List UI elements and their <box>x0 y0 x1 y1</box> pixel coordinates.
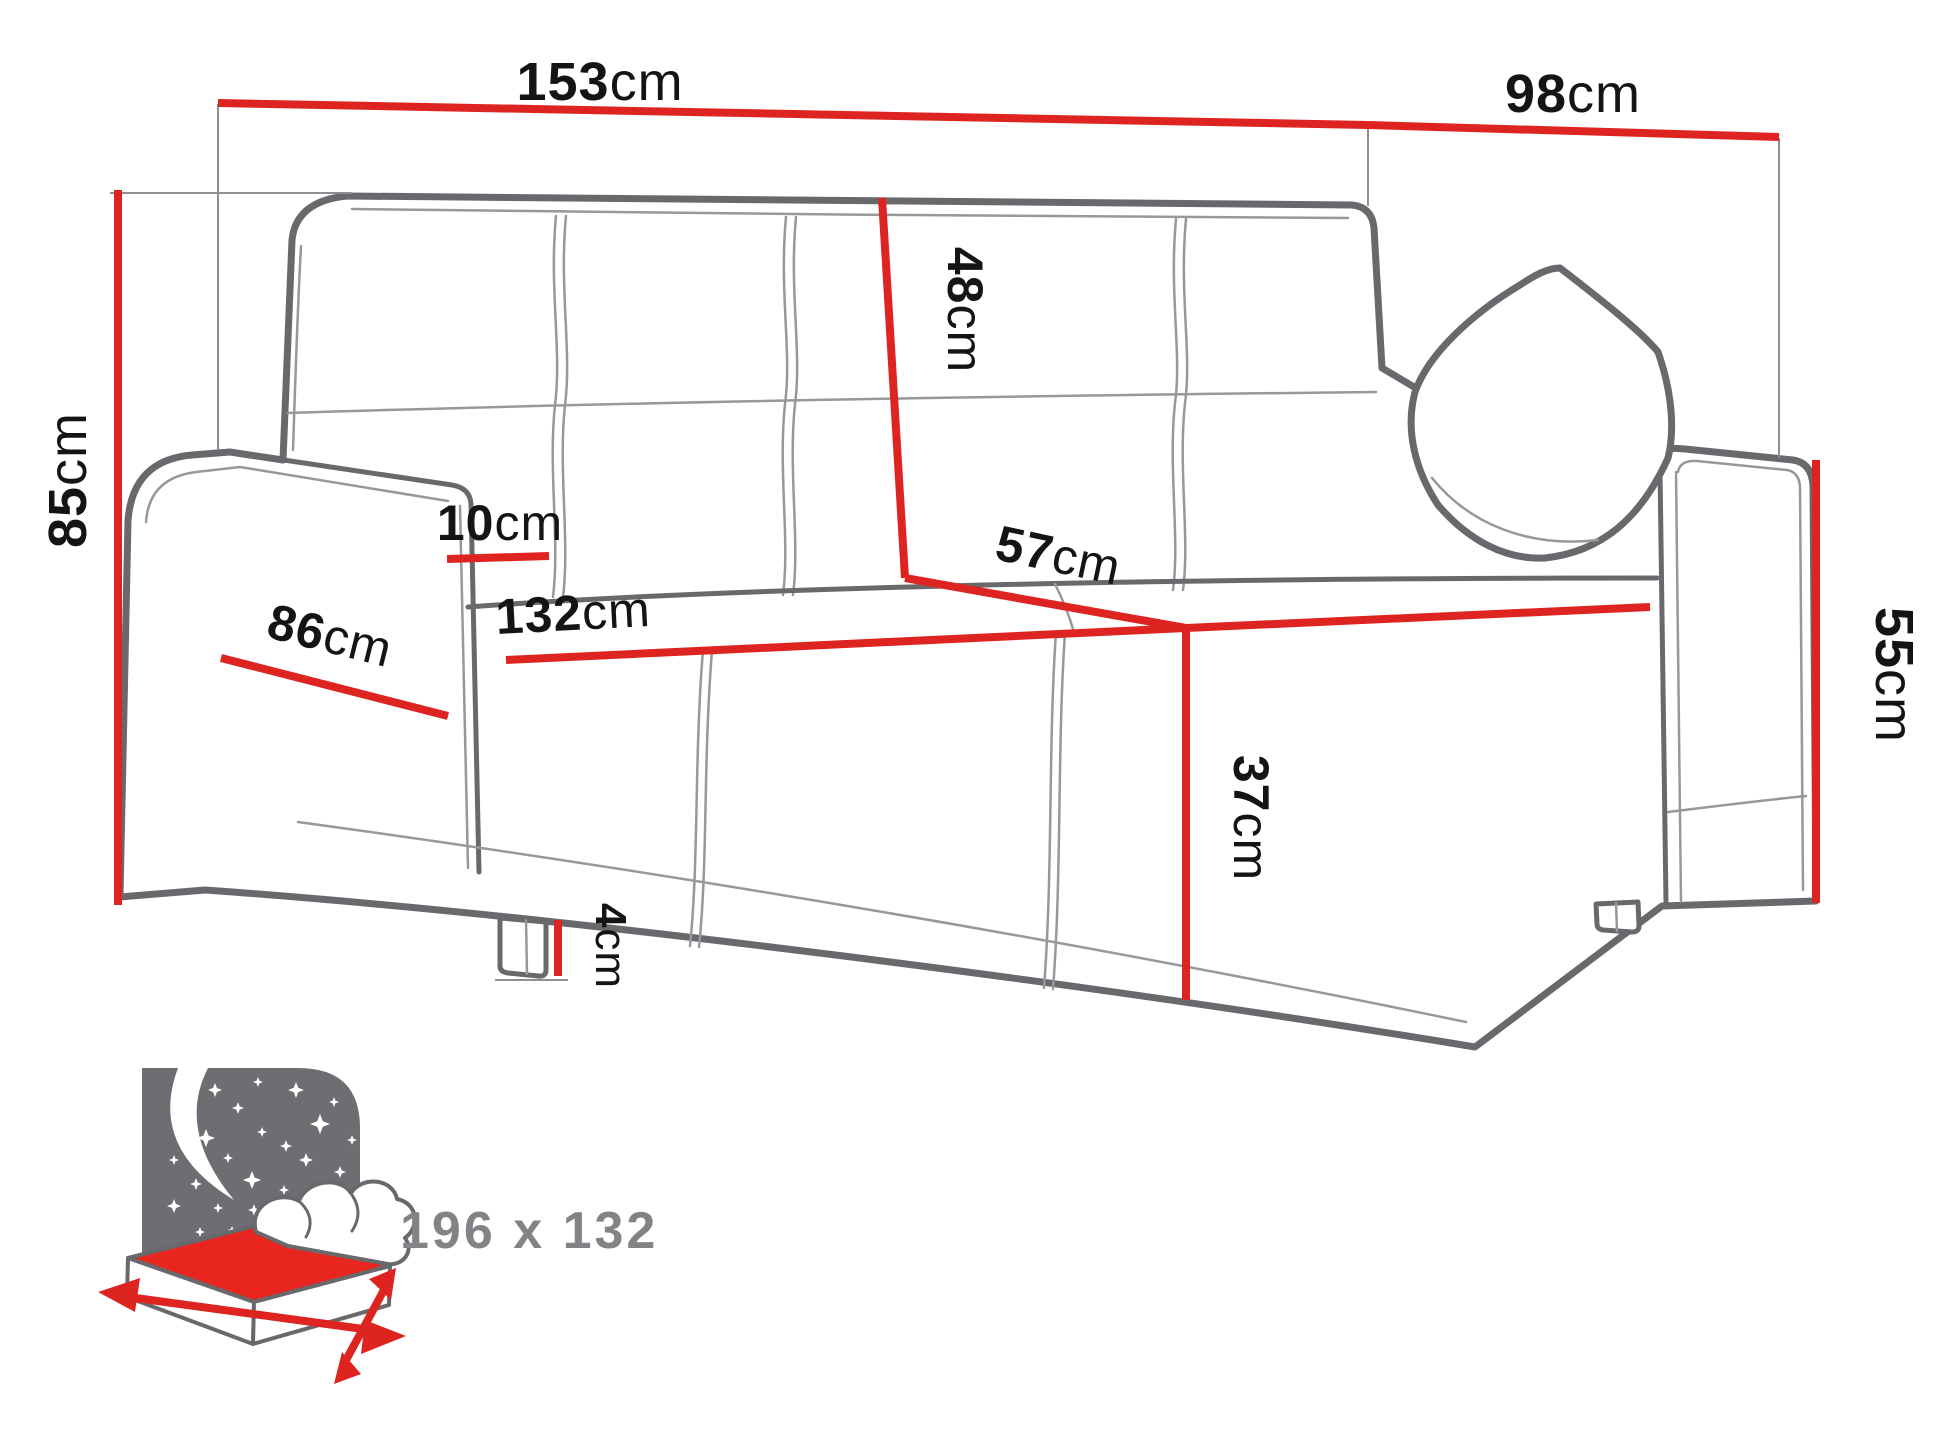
sofa-leg-edge <box>1616 903 1617 931</box>
dimension-label-total-height: 85cm <box>38 412 98 548</box>
dimension-label-armrest-height: 55cm <box>1864 607 1924 743</box>
sofa-leg-edge <box>526 920 527 974</box>
dimension-label-seat-height: 37cm <box>1223 755 1279 881</box>
sofa-pillow <box>1411 268 1672 558</box>
bed-size-label: 196 x 132 <box>400 1202 658 1260</box>
dimension-label-backrest-height: 48cm <box>937 247 993 373</box>
width-arrow-head <box>98 1278 140 1312</box>
dimension-label-seat-width: 132cm <box>494 581 652 645</box>
dimension-line-total-width <box>218 103 1368 125</box>
dimension-label-armrest-width: 10cm <box>437 495 563 551</box>
sofa-leg <box>500 918 546 976</box>
dimension-line-armrest-width <box>447 556 549 559</box>
sleeping-area-icon: 196 x 132 <box>98 1068 658 1384</box>
pillow-outline <box>1411 268 1672 558</box>
dimension-label-leg-height: 4cm <box>586 903 635 989</box>
dimension-diagram: 153cm 98cm 85cm 48cm 10cm 86cm 132cm 57c… <box>0 0 1940 1456</box>
dimension-label-total-depth: 98cm <box>1505 64 1641 124</box>
dimension-line-total-depth <box>1368 125 1779 137</box>
dimension-label-total-width: 153cm <box>516 52 683 112</box>
